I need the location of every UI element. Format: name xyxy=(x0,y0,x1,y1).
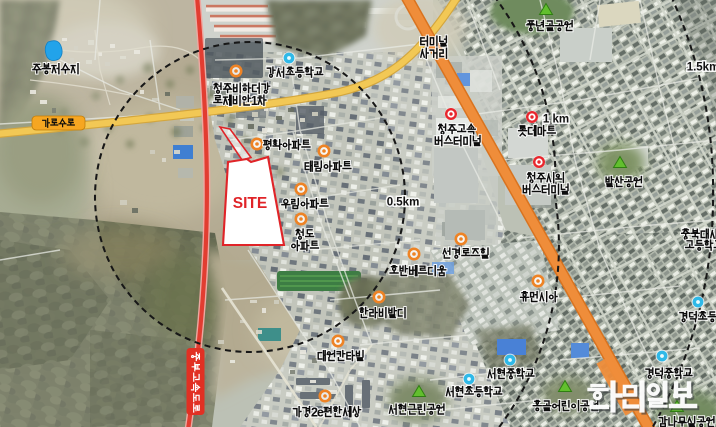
svg-text:SITE: SITE xyxy=(233,195,267,212)
svg-text:1: 1 xyxy=(251,94,258,108)
svg-text:e: e xyxy=(317,405,324,419)
svg-text:1.5km: 1.5km xyxy=(687,62,716,74)
svg-text:1 km: 1 km xyxy=(543,114,569,126)
svg-text:0.5km: 0.5km xyxy=(387,197,420,209)
